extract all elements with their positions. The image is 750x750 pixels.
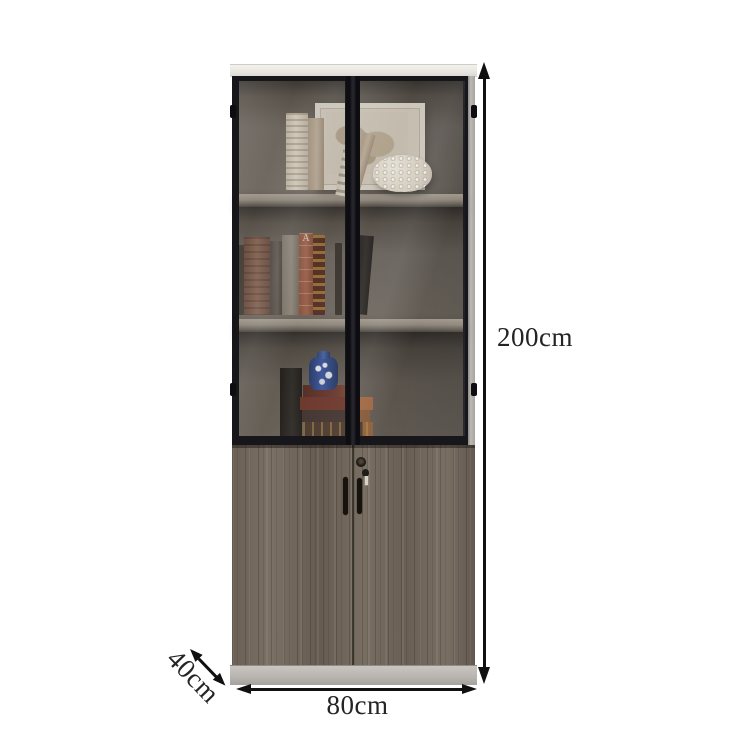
- width-arrow-left-icon: [236, 684, 251, 694]
- hinge: [471, 383, 477, 396]
- wood-door-section: [232, 445, 475, 665]
- base-plinth: [230, 665, 477, 685]
- width-dimension-label: 80cm: [300, 690, 415, 721]
- height-arrow-up-icon: [478, 62, 490, 79]
- door-handle-right: [357, 478, 362, 514]
- width-arrow-right-icon: [462, 684, 477, 694]
- hinge: [230, 105, 236, 118]
- door-handle-left: [343, 477, 348, 515]
- height-dimension-line: [483, 78, 486, 668]
- keyhole-lock: [356, 457, 366, 467]
- glass-door-center-stiles: [346, 76, 360, 445]
- height-dimension-label: 200cm: [497, 322, 573, 353]
- glass-display-section: A: [232, 76, 475, 445]
- hinge: [471, 105, 477, 118]
- key-shaft: [364, 476, 369, 486]
- product-image: A 200cm 80cm: [0, 0, 750, 750]
- door-center-seam: [352, 445, 354, 665]
- height-arrow-down-icon: [478, 667, 490, 684]
- glass-door-left: [236, 78, 348, 439]
- glass-door-right: [356, 78, 468, 439]
- hinge: [230, 383, 236, 396]
